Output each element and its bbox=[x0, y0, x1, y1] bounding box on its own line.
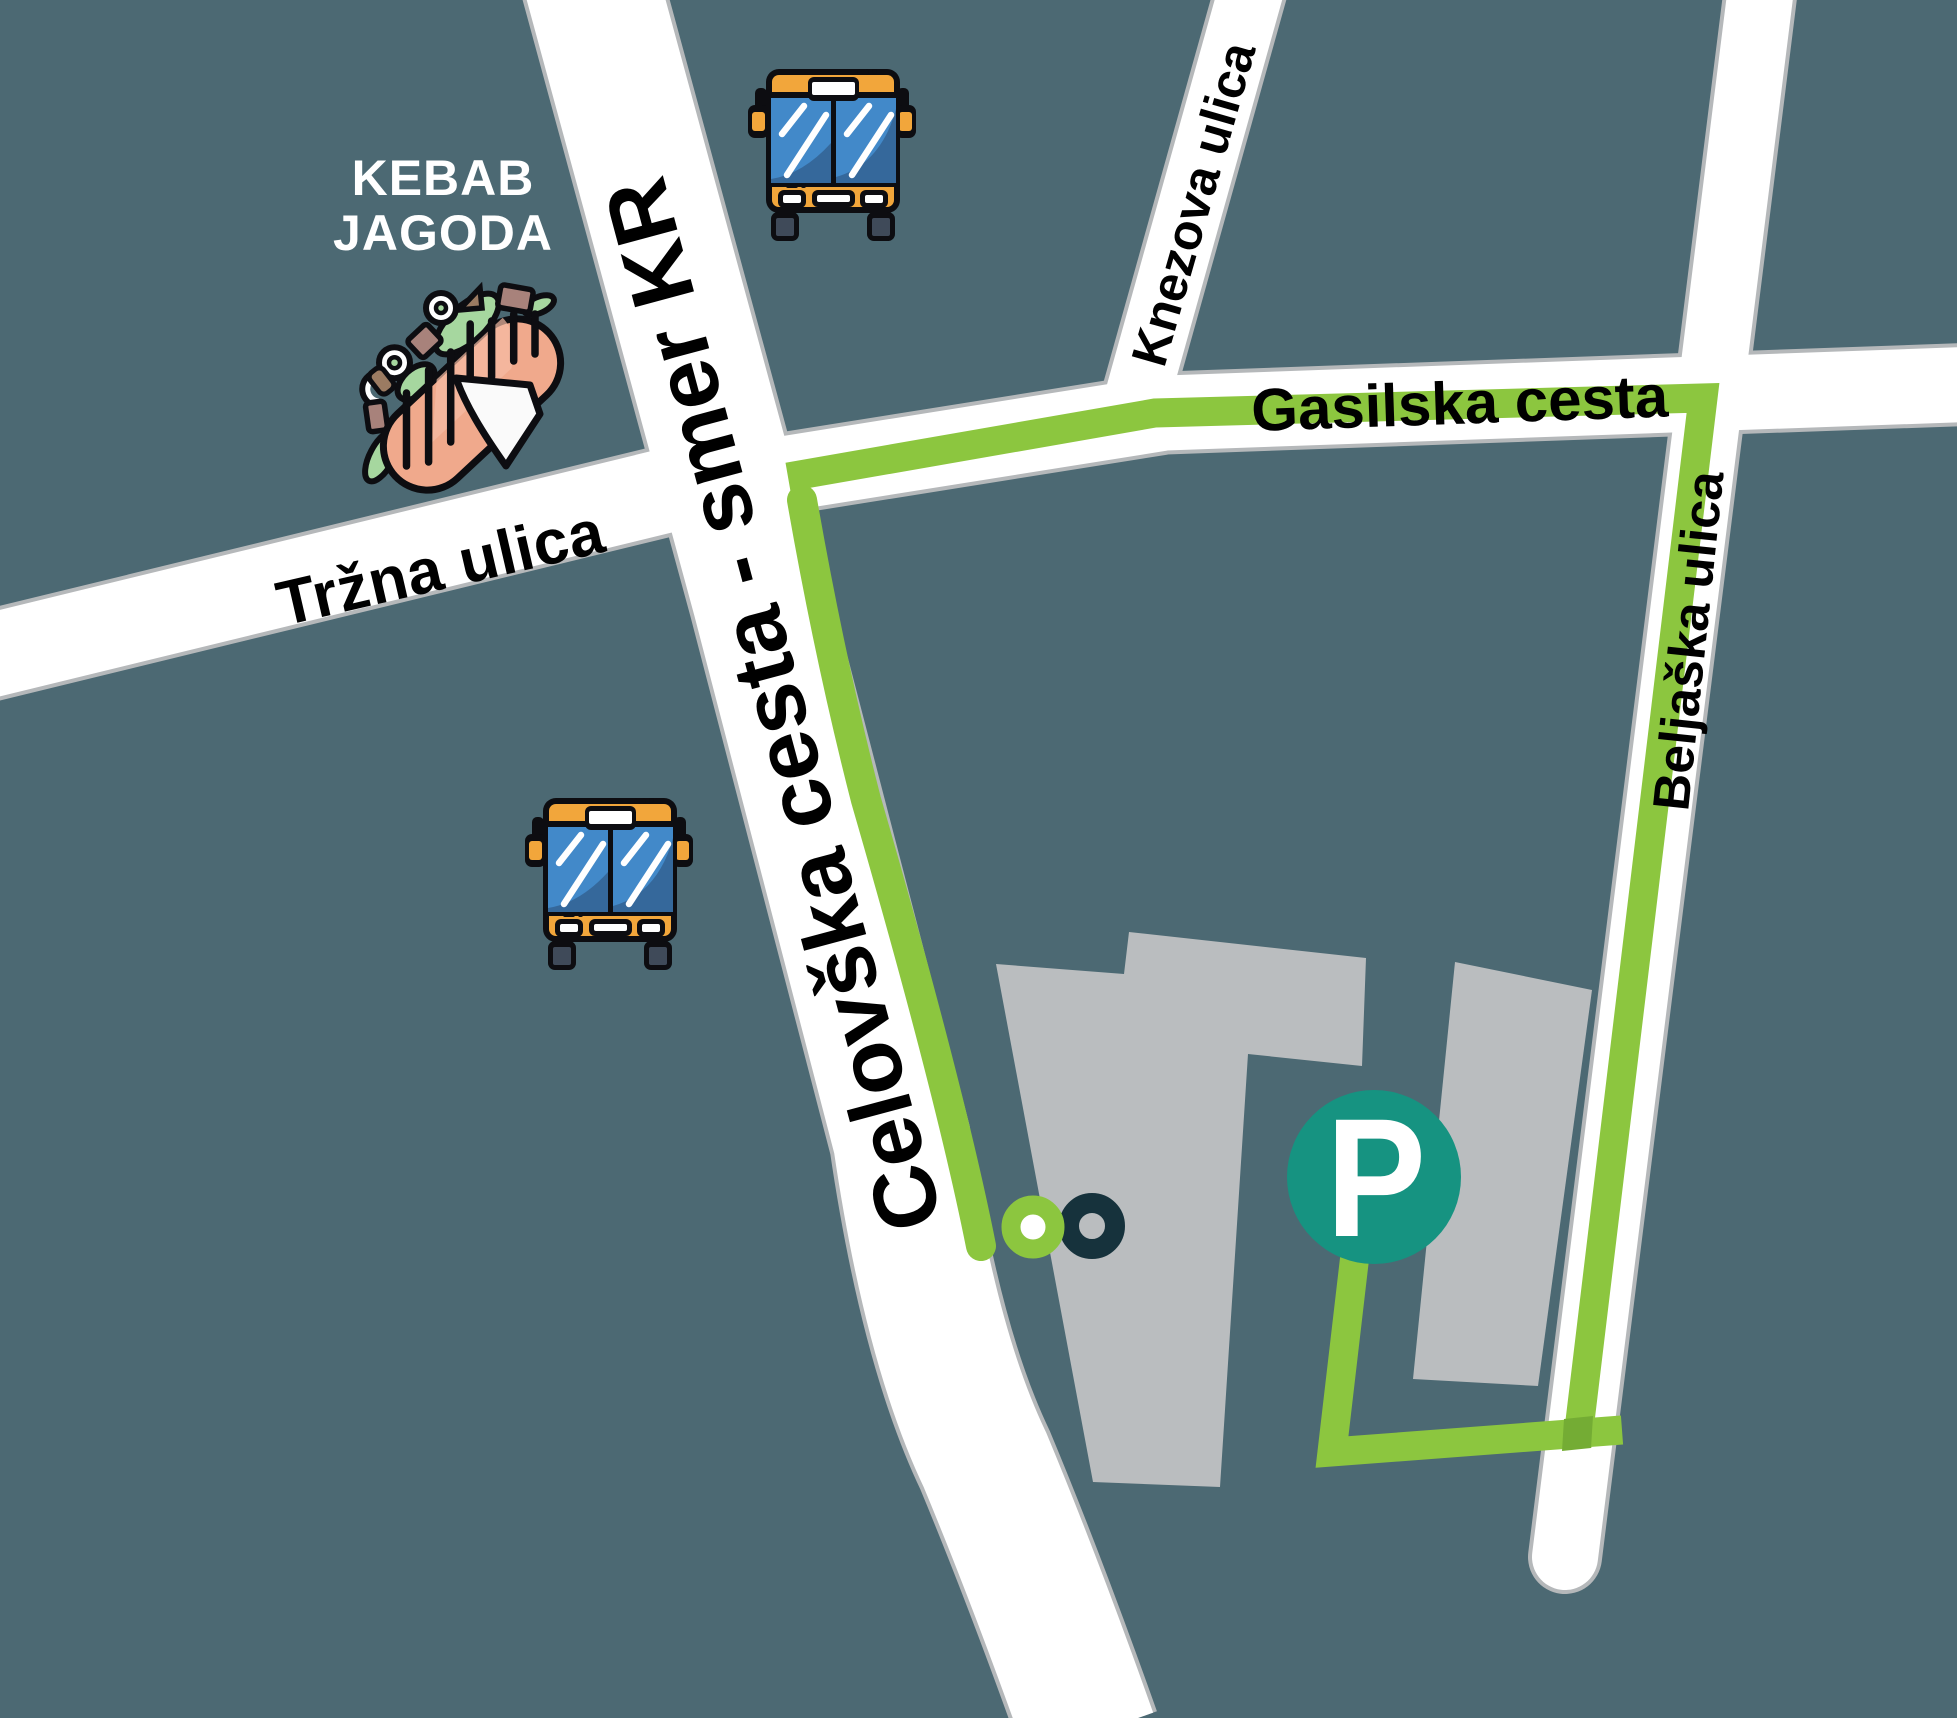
svg-text:KEBAB: KEBAB bbox=[352, 150, 535, 206]
svg-text:P: P bbox=[1326, 1083, 1426, 1272]
svg-text:JAGODA: JAGODA bbox=[333, 205, 553, 261]
